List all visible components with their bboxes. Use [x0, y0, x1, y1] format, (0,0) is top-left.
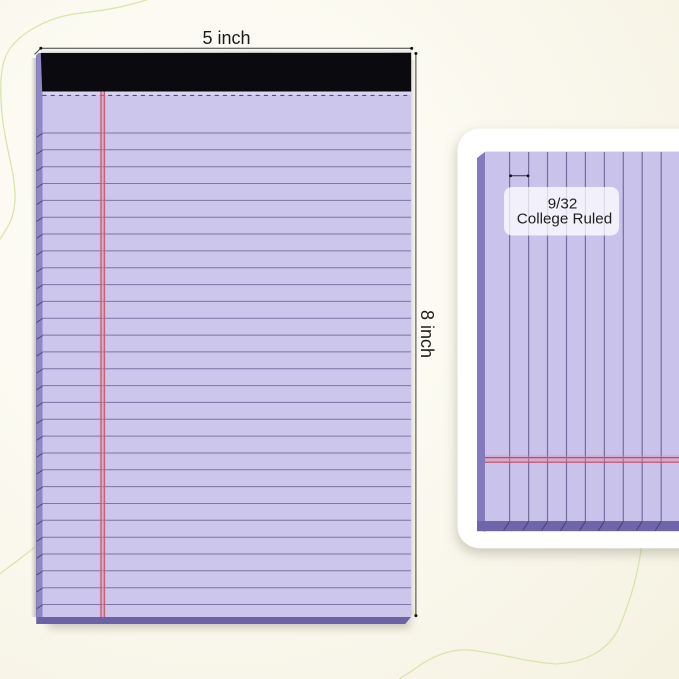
svg-text:5 inch: 5 inch: [202, 28, 250, 48]
svg-text:College Ruled: College Ruled: [517, 211, 612, 228]
svg-text:8 inch: 8 inch: [417, 310, 437, 358]
